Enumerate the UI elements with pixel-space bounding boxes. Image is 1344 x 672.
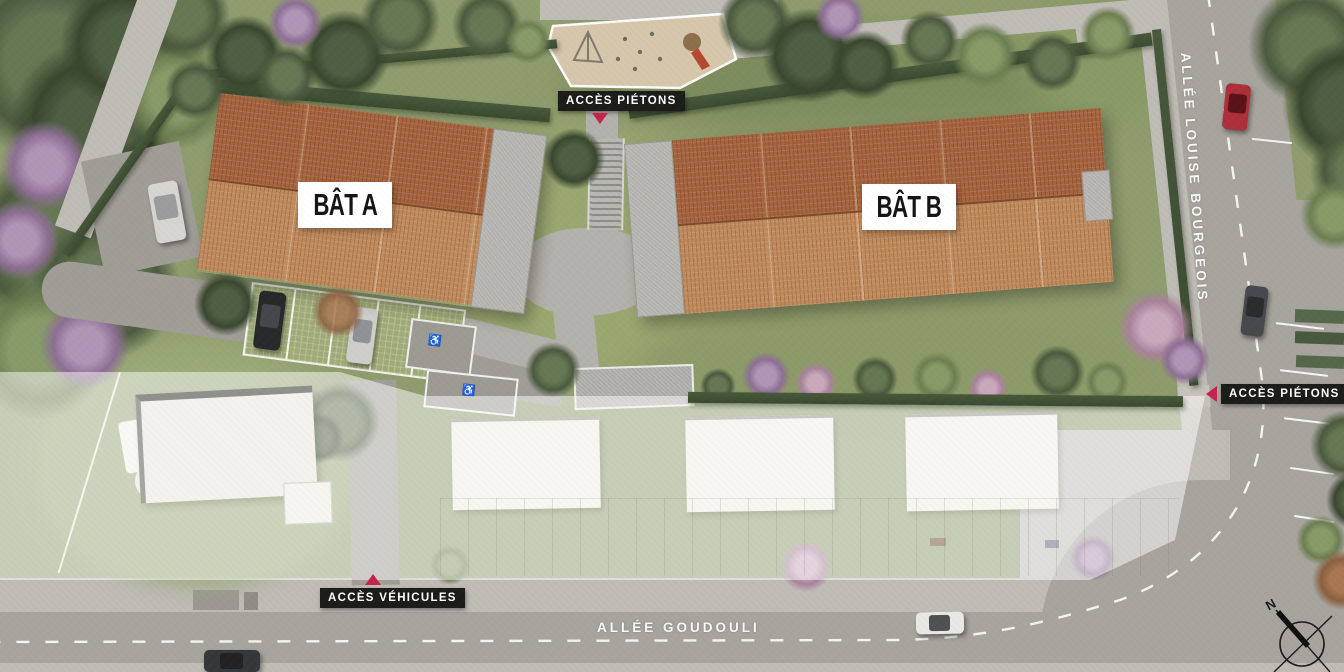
- site-plan: ♿ ♿: [0, 0, 1344, 672]
- car-window: [1246, 296, 1265, 318]
- access-pietons-top-tag: ACCÈS PIÉTONS: [558, 91, 685, 111]
- access-pietons-right-tag: ACCÈS PIÉTONS: [1221, 384, 1344, 404]
- car-window: [220, 653, 244, 669]
- white-car: [916, 612, 964, 635]
- car-window: [1227, 93, 1247, 113]
- red-car: [1222, 83, 1252, 131]
- triangle-up-icon: [365, 574, 381, 585]
- access-vehicules-tag: ACCÈS VÉHICULES: [320, 588, 465, 608]
- dark-car: [204, 650, 260, 672]
- bat-b-label: BÂT B: [862, 184, 956, 230]
- bat-a-label: BÂT A: [298, 182, 392, 228]
- triangle-left-icon: [1206, 386, 1217, 402]
- bat-b-label-text: BÂT B: [877, 189, 942, 225]
- street-name-goudouli: ALLÉE GOUDOULI: [597, 620, 760, 635]
- compass-needle: [1278, 612, 1308, 646]
- car-window: [929, 615, 949, 631]
- triangle-down-icon: [592, 113, 608, 124]
- bat-a-label-text: BÂT A: [313, 187, 377, 223]
